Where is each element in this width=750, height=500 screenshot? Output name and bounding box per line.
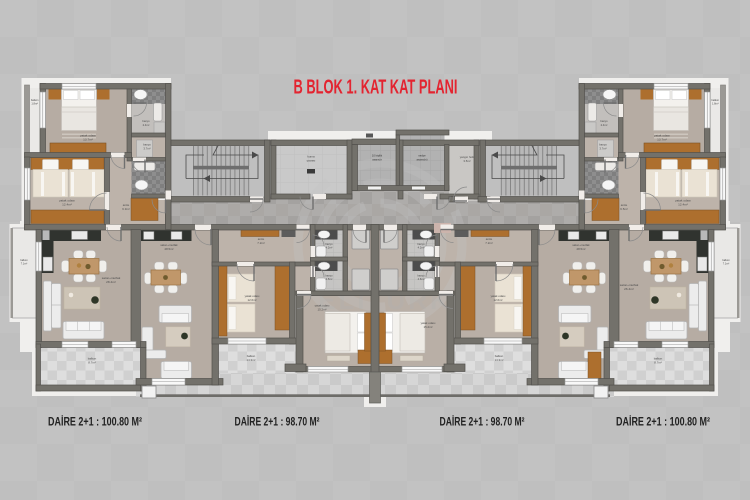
svg-text:12.6m²: 12.6m² [248, 298, 257, 302]
svg-text:asansör: asansör [372, 157, 382, 161]
svg-text:8.7m²: 8.7m² [88, 361, 95, 365]
svg-text:13.7m²: 13.7m² [83, 138, 93, 142]
svg-text:14.3m²: 14.3m² [247, 358, 256, 362]
svg-text:15.2m²: 15.2m² [318, 308, 327, 312]
svg-text:banyo: banyo [600, 119, 608, 123]
svg-text:14.3m²: 14.3m² [495, 358, 504, 362]
svg-text:4.2m²: 4.2m² [326, 246, 333, 250]
svg-text:26.4m²: 26.4m² [624, 287, 634, 291]
svg-text:2.4m²: 2.4m² [601, 123, 608, 127]
svg-text:7.2m²: 7.2m² [257, 241, 264, 245]
svg-text:4.2m²: 4.2m² [418, 246, 425, 250]
svg-text:12.4m²: 12.4m² [62, 203, 72, 207]
svg-text:yavası: yavası [307, 159, 316, 163]
svg-text:3.7m²: 3.7m² [599, 146, 606, 150]
svg-text:8.7m²: 8.7m² [654, 361, 661, 365]
svg-text:28.5m²: 28.5m² [577, 247, 586, 251]
svg-text:DAİRE 2+1 : 98.70 M²: DAİRE 2+1 : 98.70 M² [235, 414, 320, 429]
svg-text:7.1m²: 7.1m² [723, 263, 730, 266]
svg-text:balkon: balkon [722, 259, 730, 262]
svg-text:12.6m²: 12.6m² [494, 298, 503, 302]
svg-text:3.5m²: 3.5m² [463, 159, 470, 163]
svg-text:1.8m²: 1.8m² [712, 102, 719, 106]
svg-text:10 kişilik: 10 kişilik [372, 154, 383, 158]
svg-text:DAİRE 2+1 : 100.80 M²: DAİRE 2+1 : 100.80 M² [48, 414, 142, 429]
svg-text:balkon: balkon [711, 98, 719, 102]
svg-text:sedye: sedye [418, 154, 426, 158]
svg-text:15.2m²: 15.2m² [424, 325, 433, 329]
svg-text:banyo: banyo [417, 242, 425, 246]
svg-text:7.1m²: 7.1m² [21, 263, 28, 266]
svg-text:28.4m²: 28.4m² [106, 280, 116, 284]
svg-text:banyo: banyo [417, 274, 425, 278]
svg-text:2.4m²: 2.4m² [143, 123, 150, 127]
svg-text:B BLOK 1. KAT KAT PLANI: B BLOK 1. KAT KAT PLANI [294, 76, 458, 99]
svg-text:4.6m²: 4.6m² [418, 277, 425, 281]
svg-text:3.7m²: 3.7m² [143, 146, 150, 150]
svg-text:1.8m²: 1.8m² [31, 102, 38, 106]
svg-text:12.4m²: 12.4m² [678, 203, 688, 207]
svg-text:DAİRE 2+1 : 100.80 M²: DAİRE 2+1 : 100.80 M² [616, 414, 710, 429]
svg-text:28.5m²: 28.5m² [165, 247, 174, 251]
svg-text:6.3m²: 6.3m² [122, 207, 129, 211]
svg-text:asansörü: asansörü [416, 157, 428, 161]
svg-text:13.7m²: 13.7m² [657, 138, 667, 142]
svg-text:7.2m²: 7.2m² [485, 241, 492, 245]
svg-text:4.5m²: 4.5m² [326, 277, 333, 281]
svg-text:balkon: balkon [31, 98, 39, 102]
svg-text:DAİRE 2+1 : 98.70 M²: DAİRE 2+1 : 98.70 M² [440, 414, 525, 429]
svg-text:6.5m²: 6.5m² [620, 207, 627, 211]
svg-text:banyo: banyo [325, 242, 333, 246]
svg-text:banyo: banyo [325, 274, 333, 278]
svg-text:balkon: balkon [20, 259, 28, 262]
svg-text:banyo: banyo [142, 119, 150, 123]
